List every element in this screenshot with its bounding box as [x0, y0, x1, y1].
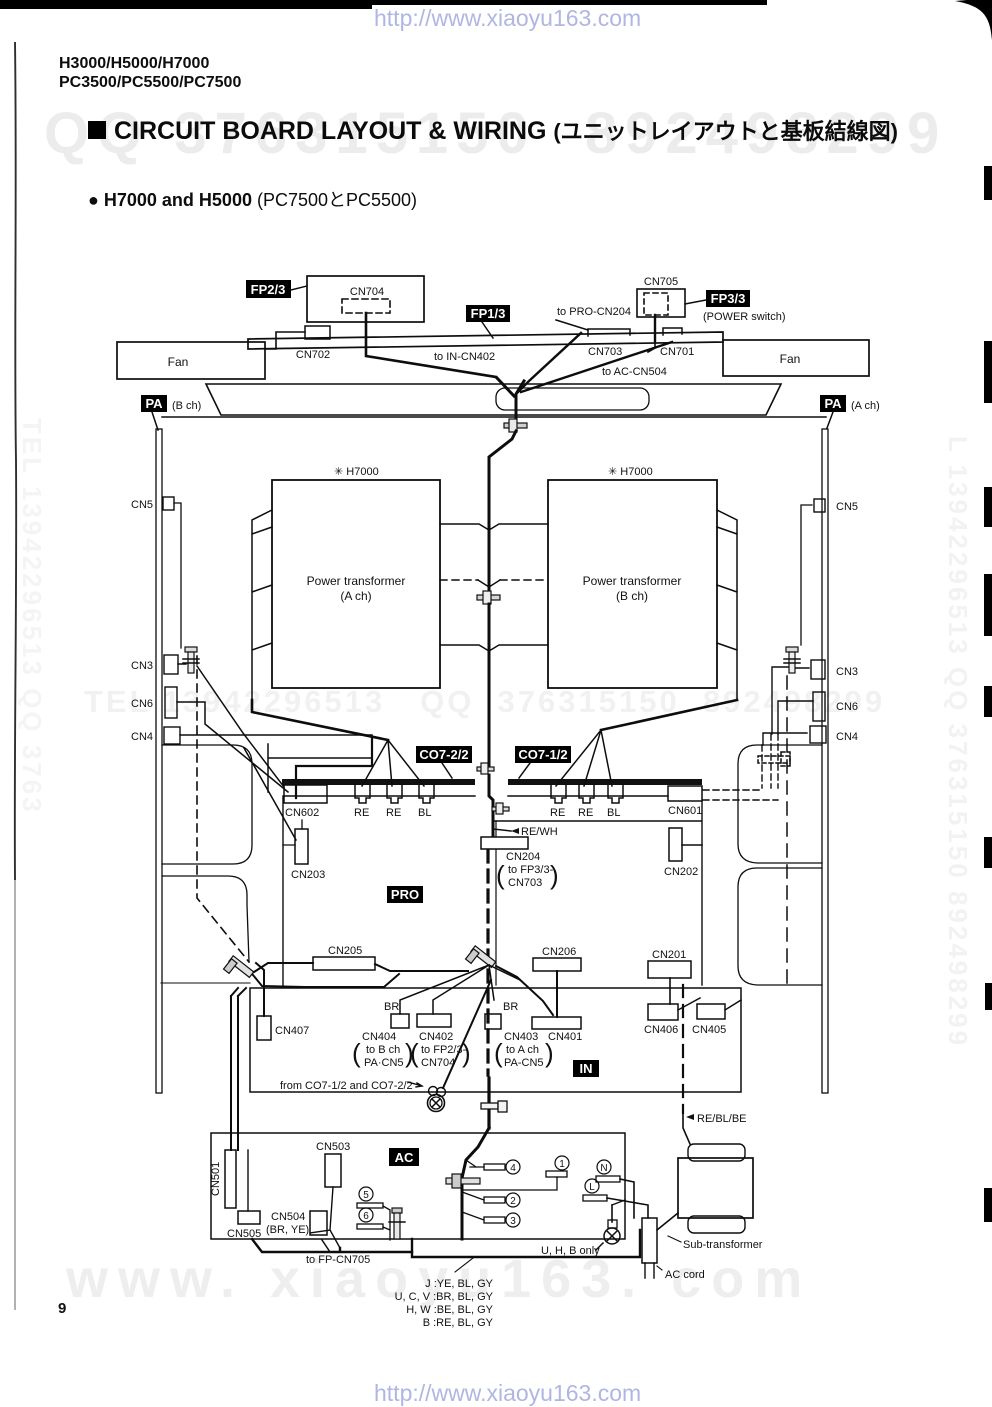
svg-text:AC: AC [395, 1150, 414, 1165]
svg-text:BL: BL [607, 807, 620, 819]
svg-text:to B ch: to B ch [366, 1044, 400, 1056]
svg-text:CN204: CN204 [506, 851, 540, 863]
svg-text:CN503: CN503 [316, 1141, 350, 1153]
svg-text:J :YE, BL, GY: J :YE, BL, GY [425, 1278, 494, 1290]
svg-text:CN403: CN403 [504, 1031, 538, 1043]
svg-text:(: ( [410, 1038, 419, 1068]
svg-text:CN407: CN407 [275, 1025, 309, 1037]
svg-text:4: 4 [510, 1163, 516, 1174]
svg-text:CN6: CN6 [131, 698, 153, 710]
svg-text:(POWER switch): (POWER switch) [703, 311, 786, 323]
svg-text:(: ( [352, 1038, 361, 1068]
svg-text:to PRO-CN204: to PRO-CN204 [557, 306, 631, 318]
svg-text:RE: RE [550, 807, 565, 819]
svg-text:CN504: CN504 [271, 1211, 305, 1223]
svg-text:CN501: CN501 [210, 1162, 222, 1196]
svg-text:CN406: CN406 [644, 1024, 678, 1036]
svg-text:CN202: CN202 [664, 866, 698, 878]
svg-text:2: 2 [510, 1196, 516, 1207]
svg-text:(B ch): (B ch) [616, 589, 648, 603]
svg-text:CN3: CN3 [836, 666, 858, 678]
svg-text:CN701: CN701 [660, 346, 694, 358]
svg-text:FP1/3: FP1/3 [471, 306, 506, 321]
svg-text:from CO7-1/2 and CO7-2/2: from CO7-1/2 and CO7-2/2 [280, 1080, 413, 1092]
svg-text:Power transformer: Power transformer [307, 574, 406, 588]
svg-text:✳ H7000: ✳ H7000 [334, 466, 379, 478]
svg-text:CN203: CN203 [291, 869, 325, 881]
svg-text:(: ( [494, 1038, 503, 1068]
svg-text:Sub-transformer: Sub-transformer [683, 1239, 763, 1251]
svg-text:N: N [600, 1163, 607, 1174]
svg-text:CN206: CN206 [542, 946, 576, 958]
svg-text:PA: PA [145, 396, 163, 411]
svg-text:3: 3 [510, 1216, 516, 1227]
svg-text:(: ( [496, 860, 505, 890]
svg-text:CN703: CN703 [508, 877, 542, 889]
svg-text:RE: RE [354, 807, 369, 819]
svg-text:): ) [550, 860, 559, 890]
svg-text:IN: IN [580, 1061, 593, 1076]
svg-text:Power transformer: Power transformer [583, 574, 682, 588]
svg-text:PA: PA [824, 396, 842, 411]
svg-text:RE/WH: RE/WH [521, 826, 558, 838]
svg-text:BR: BR [503, 1001, 518, 1013]
svg-text:to FP2/3-: to FP2/3- [421, 1044, 467, 1056]
svg-text:to FP-CN705: to FP-CN705 [306, 1254, 370, 1266]
svg-text:BL: BL [418, 807, 431, 819]
svg-text:CN3: CN3 [131, 660, 153, 672]
svg-text:PRO: PRO [391, 887, 419, 902]
svg-text:to FP3/3-: to FP3/3- [508, 864, 554, 876]
svg-text:CN5: CN5 [131, 499, 153, 511]
svg-text:CO7-2/2: CO7-2/2 [419, 747, 468, 762]
svg-text:CN402: CN402 [419, 1031, 453, 1043]
svg-text:CN704: CN704 [350, 286, 384, 298]
svg-text:AC cord: AC cord [665, 1269, 705, 1281]
svg-text:CN6: CN6 [836, 701, 858, 713]
svg-text:): ) [462, 1038, 471, 1068]
svg-text:CN505: CN505 [227, 1228, 261, 1240]
svg-text:(A ch): (A ch) [340, 589, 371, 603]
svg-text:FP2/3: FP2/3 [251, 282, 286, 297]
svg-text:CN5: CN5 [836, 501, 858, 513]
svg-text:CN602: CN602 [285, 807, 319, 819]
svg-text:CN405: CN405 [692, 1024, 726, 1036]
svg-text:L: L [589, 1182, 595, 1193]
svg-text:CN702: CN702 [296, 349, 330, 361]
svg-text:CN4: CN4 [131, 731, 153, 743]
svg-text:(A ch): (A ch) [851, 400, 880, 412]
svg-text:B :RE, BL, GY: B :RE, BL, GY [423, 1317, 494, 1329]
svg-text:CN201: CN201 [652, 949, 686, 961]
svg-text:CN705: CN705 [644, 276, 678, 288]
svg-text:to IN-CN402: to IN-CN402 [434, 351, 495, 363]
svg-text:U, H, B only: U, H, B only [541, 1245, 600, 1257]
svg-text:1: 1 [559, 1159, 565, 1170]
svg-text:CN205: CN205 [328, 945, 362, 957]
svg-text:(B ch): (B ch) [172, 400, 201, 412]
svg-text:PA-CN5: PA-CN5 [504, 1057, 544, 1069]
svg-text:RE/BL/BE: RE/BL/BE [697, 1113, 747, 1125]
svg-text:H, W :BE, BL, GY: H, W :BE, BL, GY [406, 1304, 493, 1316]
svg-text:Fan: Fan [168, 355, 189, 369]
svg-text:CN4: CN4 [836, 731, 858, 743]
svg-text:(BR, YE): (BR, YE) [266, 1224, 309, 1236]
svg-text:6: 6 [363, 1211, 369, 1222]
svg-text:CN704: CN704 [421, 1057, 455, 1069]
svg-text:FP3/3: FP3/3 [711, 291, 746, 306]
svg-text:U, C, V :BR, BL, GY: U, C, V :BR, BL, GY [395, 1291, 494, 1303]
svg-text:RE: RE [386, 807, 401, 819]
svg-text:PA·CN5: PA·CN5 [364, 1057, 404, 1069]
svg-text:CN703: CN703 [588, 346, 622, 358]
svg-text:✳ H7000: ✳ H7000 [608, 466, 653, 478]
svg-text:CN404: CN404 [362, 1031, 396, 1043]
svg-text:CN601: CN601 [668, 805, 702, 817]
svg-text:to AC-CN504: to AC-CN504 [602, 366, 667, 378]
svg-text:RE: RE [578, 807, 593, 819]
svg-text:): ) [545, 1038, 554, 1068]
svg-text:5: 5 [363, 1190, 369, 1201]
svg-text:BR: BR [384, 1001, 399, 1013]
svg-text:to A ch: to A ch [506, 1044, 539, 1056]
svg-text:Fan: Fan [780, 352, 801, 366]
svg-text:CO7-1/2: CO7-1/2 [518, 747, 567, 762]
